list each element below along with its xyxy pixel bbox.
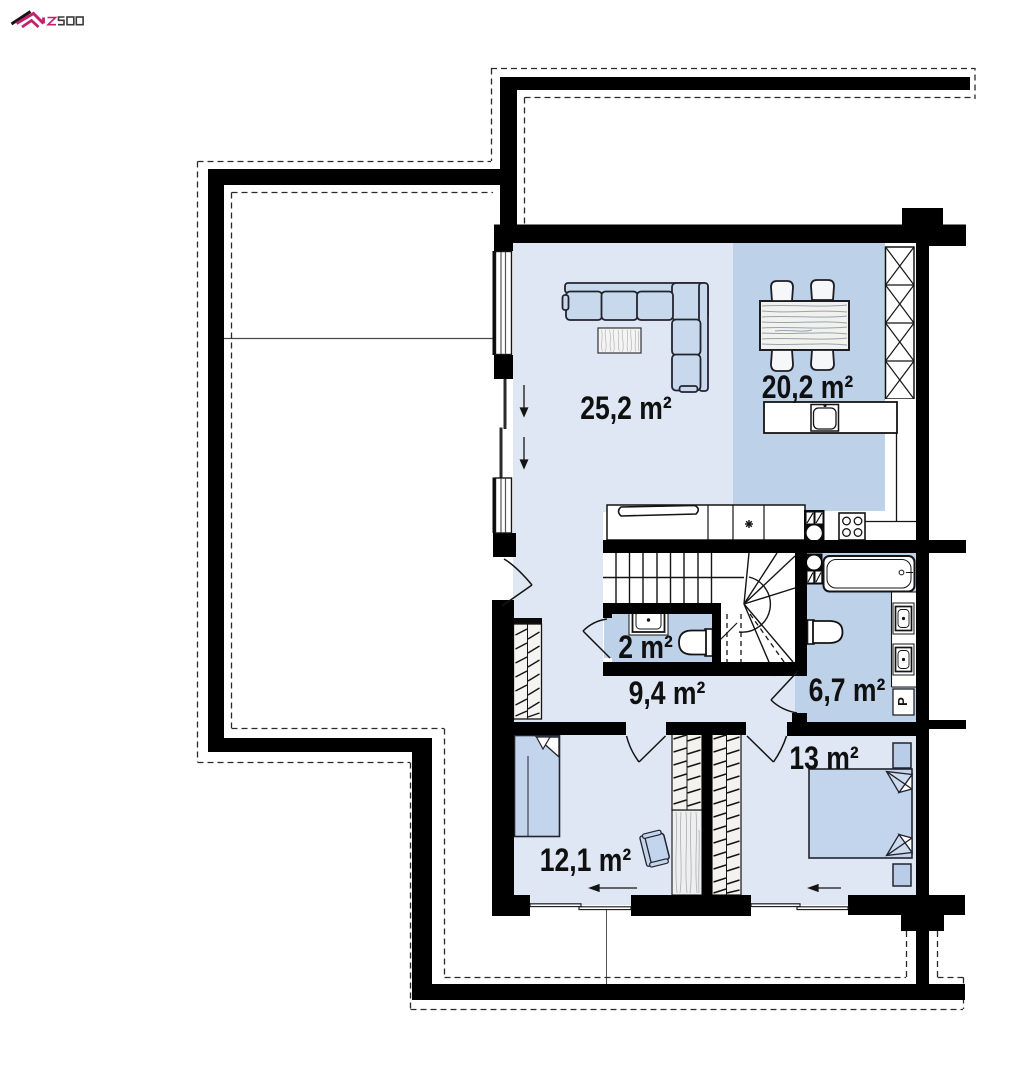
svg-text:2 m²: 2 m² bbox=[618, 630, 673, 666]
svg-text:P: P bbox=[895, 697, 910, 706]
svg-text:13 m²: 13 m² bbox=[789, 741, 859, 777]
svg-text:20,2 m²: 20,2 m² bbox=[762, 370, 854, 406]
svg-text:6,7 m²: 6,7 m² bbox=[809, 673, 886, 709]
svg-text:25,2 m²: 25,2 m² bbox=[580, 391, 672, 427]
svg-text:12,1 m²: 12,1 m² bbox=[540, 843, 632, 879]
svg-text:9,4 m²: 9,4 m² bbox=[629, 676, 706, 712]
